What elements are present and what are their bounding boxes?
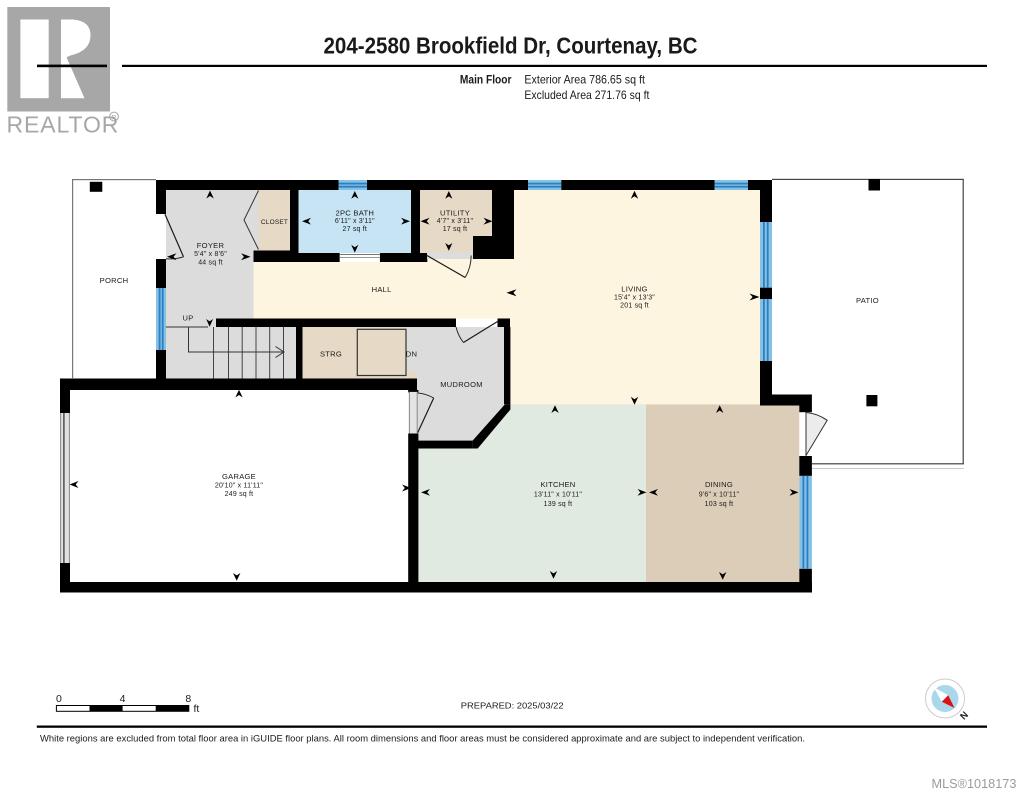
svg-text:PORCH: PORCH [100, 276, 129, 285]
svg-text:GARAGE: GARAGE [222, 472, 256, 481]
svg-text:White regions are excluded fro: White regions are excluded from total fl… [40, 734, 805, 745]
svg-text:LIVING: LIVING [621, 284, 647, 293]
svg-text:ft: ft [194, 703, 200, 715]
svg-text:44 sq ft: 44 sq ft [198, 260, 223, 267]
svg-text:Exterior Area 786.65 sq ft: Exterior Area 786.65 sq ft [524, 72, 645, 86]
svg-text:17 sq ft: 17 sq ft [443, 226, 468, 233]
svg-text:15'4" x 13'3": 15'4" x 13'3" [614, 294, 655, 301]
svg-text:MLS®1018173: MLS®1018173 [932, 777, 1017, 791]
svg-text:MUDROOM: MUDROOM [440, 380, 483, 389]
svg-text:KITCHEN: KITCHEN [540, 480, 575, 489]
svg-text:139 sq ft: 139 sq ft [544, 501, 573, 508]
svg-text:5'4" x 8'6": 5'4" x 8'6" [194, 251, 227, 258]
svg-text:REALTOR: REALTOR [7, 112, 120, 138]
svg-text:103 sq ft: 103 sq ft [705, 501, 734, 508]
svg-text:20'10" x 11'11": 20'10" x 11'11" [215, 483, 263, 490]
svg-text:Excluded Area 271.76 sq ft: Excluded Area 271.76 sq ft [524, 88, 650, 102]
svg-text:4: 4 [120, 693, 126, 705]
svg-text:27 sq ft: 27 sq ft [343, 226, 368, 233]
svg-text:Main Floor: Main Floor [460, 72, 512, 86]
svg-text:PATIO: PATIO [856, 296, 879, 305]
svg-text:2PC BATH: 2PC BATH [336, 208, 375, 217]
svg-text:UTILITY: UTILITY [440, 208, 470, 217]
svg-text:R: R [112, 114, 117, 121]
svg-text:PREPARED: 2025/03/22: PREPARED: 2025/03/22 [461, 701, 564, 711]
svg-text:249 sq ft: 249 sq ft [225, 491, 254, 498]
svg-text:DN: DN [406, 349, 417, 358]
svg-text:HALL: HALL [372, 285, 392, 294]
svg-text:CLOSET: CLOSET [261, 219, 288, 226]
svg-text:6'11" x 3'11": 6'11" x 3'11" [335, 218, 375, 225]
svg-text:0: 0 [56, 693, 62, 705]
svg-text:4'7" x 3'11": 4'7" x 3'11" [437, 218, 474, 225]
svg-text:FOYER: FOYER [197, 241, 225, 250]
svg-text:DINING: DINING [705, 480, 733, 489]
svg-text:13'11" x 10'11": 13'11" x 10'11" [534, 491, 582, 498]
svg-text:STRG: STRG [320, 349, 342, 358]
svg-text:8: 8 [185, 693, 191, 705]
svg-text:9'6" x 10'11": 9'6" x 10'11" [699, 491, 740, 498]
svg-text:UP: UP [182, 314, 193, 323]
svg-text:204-2580 Brookfield Dr, Courte: 204-2580 Brookfield Dr, Courtenay, BC [324, 33, 698, 59]
svg-text:201 sq ft: 201 sq ft [620, 302, 649, 309]
